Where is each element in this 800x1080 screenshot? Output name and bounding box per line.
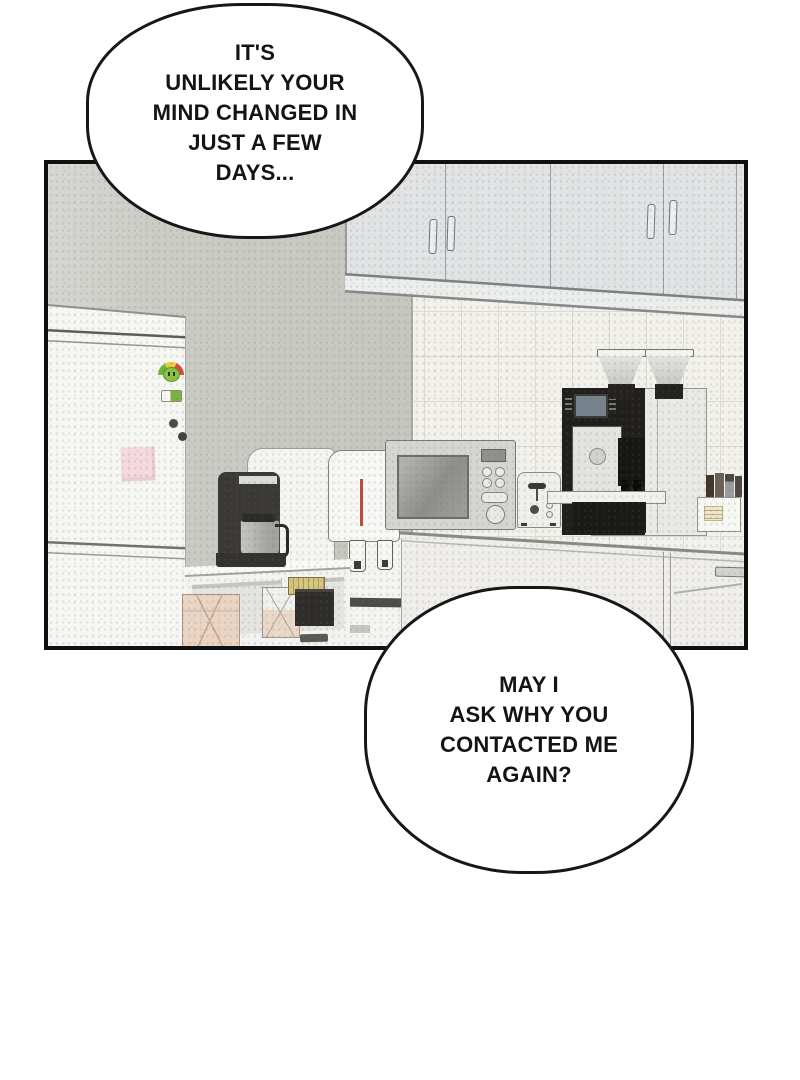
stick-caddy xyxy=(697,497,741,532)
drawer-handle xyxy=(715,567,744,578)
microwave xyxy=(385,440,516,530)
bubble-line: CONTACTED ME xyxy=(440,730,618,760)
caddy-stick xyxy=(715,473,724,499)
microwave-button xyxy=(482,467,492,477)
toaster-button xyxy=(546,511,553,518)
spout-tip xyxy=(354,561,361,569)
microwave-button xyxy=(495,478,505,488)
bubble-line: MAY I xyxy=(499,670,559,700)
bean-hopper-rim xyxy=(645,349,694,357)
lower-cabinet-divider xyxy=(670,553,671,646)
bean-hopper-collar xyxy=(655,384,683,399)
comic-page: { "bubbles": [ {"name": "speech-bubble-t… xyxy=(0,0,800,1080)
bean-hopper-rim xyxy=(597,349,646,357)
purifier-column-band xyxy=(348,598,401,608)
coffee-maker-label xyxy=(239,476,277,484)
toaster-knob xyxy=(530,505,539,514)
espresso-spout-block xyxy=(618,438,645,486)
cabinet-handle xyxy=(446,216,455,251)
purifier-spout xyxy=(377,540,393,570)
toaster-foot xyxy=(521,523,527,526)
espresso-button-dash xyxy=(565,398,572,400)
bubble-line: JUST A FEW xyxy=(188,128,322,158)
caddy-label xyxy=(704,506,723,521)
microwave-button xyxy=(482,478,492,488)
espresso-button-dash xyxy=(565,403,572,405)
sideboard-drawer-handle xyxy=(300,634,328,642)
bubble-text-block: IT'S UNLIKELY YOUR MIND CHANGED IN JUST … xyxy=(153,38,358,188)
cabinet-door-divider xyxy=(550,164,551,304)
cabinet-door-divider xyxy=(663,164,664,304)
energy-magnet-apple xyxy=(163,367,180,382)
apple-eye xyxy=(168,372,170,376)
cabinet-door-divider xyxy=(736,164,737,304)
speech-bubble-top: IT'S UNLIKELY YOUR MIND CHANGED IN JUST … xyxy=(86,3,424,239)
apple-eye xyxy=(173,372,175,376)
espresso-button-dash xyxy=(609,408,616,410)
lower-cabinet-divider xyxy=(663,552,664,646)
spout-tip xyxy=(382,560,388,567)
cabinet-handle xyxy=(646,204,655,239)
espresso-display xyxy=(574,394,608,418)
bubble-line: DAYS... xyxy=(216,158,295,188)
hot-water-stripe xyxy=(360,479,363,526)
bubble-line: IT'S xyxy=(235,38,275,68)
microwave-button xyxy=(495,467,505,477)
cabinet-handle xyxy=(428,219,437,254)
caddy-stick xyxy=(725,474,734,499)
microwave-display xyxy=(481,449,506,462)
espresso-side-edge xyxy=(657,389,658,533)
bubble-line: AGAIN? xyxy=(486,760,572,790)
speech-bubble-bottom: MAY I ASK WHY YOU CONTACTED ME AGAIN? xyxy=(364,586,694,874)
espresso-button-dash xyxy=(565,408,572,410)
microwave-window xyxy=(397,455,469,519)
coffee-maker-base xyxy=(216,553,286,567)
espresso-button-dash xyxy=(609,403,616,405)
bubble-line: MIND CHANGED IN xyxy=(153,98,358,128)
caddy-stick xyxy=(735,476,742,497)
microwave-pill-button xyxy=(481,492,508,503)
toaster-foot xyxy=(550,523,556,526)
bubble-text-block: MAY I ASK WHY YOU CONTACTED ME AGAIN? xyxy=(440,670,618,790)
battery-magnet xyxy=(161,390,182,402)
storage-box-tan xyxy=(182,594,240,646)
comic-panel xyxy=(44,160,748,650)
purifier-spout xyxy=(349,540,366,572)
espresso-logo xyxy=(589,448,606,465)
bubble-line: ASK WHY YOU xyxy=(449,700,608,730)
bean-hopper-collar xyxy=(608,384,635,399)
sticky-note xyxy=(120,446,155,481)
kitchen-scene xyxy=(48,164,744,646)
caddy-stick xyxy=(706,475,714,499)
round-magnet xyxy=(178,432,187,441)
storage-box-black xyxy=(295,589,334,626)
toaster-lever xyxy=(536,489,538,501)
round-magnet xyxy=(169,419,178,428)
cabinet-handle xyxy=(668,200,677,235)
purifier-column-trim xyxy=(348,625,370,633)
microwave-dial xyxy=(486,505,505,524)
espresso-drip-tray xyxy=(572,502,646,533)
bubble-line: UNLIKELY YOUR xyxy=(165,68,344,98)
carafe-lid xyxy=(242,514,275,522)
